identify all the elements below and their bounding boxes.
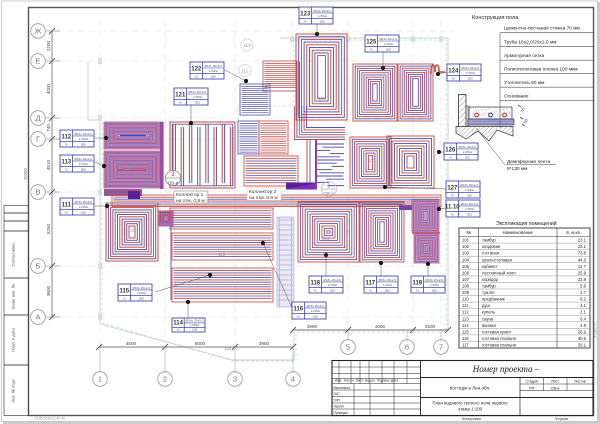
svg-text:Арматурная сетка: Арматурная сетка [504, 53, 545, 59]
svg-text:114: 114 [173, 320, 183, 326]
svg-text:L=50м: L=50м [209, 69, 218, 73]
svg-text:№ док.: № док. [365, 379, 375, 383]
svg-text:114: 114 [462, 323, 469, 328]
svg-text:L=50м: L=50м [383, 283, 392, 287]
svg-text:108: 108 [462, 284, 470, 289]
svg-text:Ж: Ж [35, 27, 42, 36]
svg-text:104: 104 [462, 257, 470, 262]
svg-text:200: 200 [385, 288, 390, 292]
svg-text:L=50м: L=50м [384, 42, 393, 46]
svg-text:117: 117 [365, 280, 375, 286]
svg-text:гостевая спальня: гостевая спальня [482, 336, 516, 341]
svg-text:Ø16x 20x2,0: Ø16x 20x2,0 [461, 202, 479, 206]
svg-text:4510: 4510 [46, 159, 51, 170]
svg-text:200: 200 [81, 142, 86, 146]
svg-text:Ø16x 20x2,0: Ø16x 20x2,0 [189, 90, 207, 94]
svg-text:2: 2 [163, 375, 167, 384]
svg-text:S, м.кв.: S, м.кв. [566, 230, 581, 235]
svg-text:117: 117 [125, 166, 133, 171]
svg-text:Г: Г [36, 135, 40, 144]
svg-text:103: 103 [462, 251, 470, 256]
svg-text:Формат: Формат [555, 417, 569, 421]
svg-text:купель: купель [482, 310, 496, 315]
svg-text:104: 104 [322, 236, 330, 241]
svg-text:200: 200 [211, 74, 216, 78]
svg-text:112: 112 [61, 134, 71, 140]
svg-text:4.1: 4.1 [580, 303, 586, 308]
svg-text:Дата: Дата [391, 379, 398, 383]
svg-text:тамбур: тамбур [482, 284, 496, 289]
svg-text:7: 7 [439, 343, 443, 352]
svg-text:200: 200 [467, 212, 472, 216]
svg-text:Д: Д [35, 114, 40, 123]
svg-text:L=50м: L=50м [430, 283, 439, 287]
svg-text:гостиная: гостиная [482, 251, 499, 256]
svg-text:кухня-столовая: кухня-столовая [482, 257, 512, 262]
svg-text:Экспликация помещений: Экспликация помещений [496, 220, 557, 227]
svg-text:200: 200 [467, 193, 472, 197]
svg-text:№: № [466, 230, 471, 235]
svg-text:Стадия: Стадия [526, 380, 538, 384]
svg-text:44.0: 44.0 [578, 257, 587, 262]
svg-text:123: 123 [300, 11, 311, 17]
svg-text:200: 200 [139, 296, 144, 300]
svg-text:29.1: 29.1 [578, 343, 587, 348]
svg-text:L=50м: L=50м [79, 137, 88, 141]
svg-text:8.4: 8.4 [580, 316, 586, 321]
svg-text:103: 103 [368, 158, 376, 163]
svg-text:8*130 мм: 8*130 мм [507, 166, 527, 172]
svg-text:3960: 3960 [307, 324, 318, 329]
svg-text:105: 105 [462, 264, 470, 269]
svg-text:Исполнила: Исполнила [334, 386, 351, 390]
svg-text:предбанник: предбанник [482, 297, 505, 302]
svg-text:15.05.2012 11:49:10: 15.05.2012 11:49:10 [34, 417, 65, 421]
svg-text:111: 111 [62, 202, 72, 208]
svg-text:ГАП: ГАП [334, 392, 341, 396]
svg-text:116: 116 [150, 136, 158, 141]
svg-text:101: 101 [128, 228, 136, 233]
svg-text:Ø16x 20x2,0: Ø16x 20x2,0 [133, 286, 151, 290]
svg-text:5000: 5000 [195, 341, 206, 346]
svg-text:Ø16x 20x2,0: Ø16x 20x2,0 [380, 37, 398, 41]
svg-text:4500: 4500 [126, 341, 137, 346]
svg-text:тамбур: тамбур [482, 238, 496, 243]
svg-text:115: 115 [462, 329, 469, 334]
svg-text:200: 200 [313, 314, 318, 318]
svg-text:Чертил: Чертил [334, 405, 345, 409]
svg-text:ОВ-в: ОВ-в [324, 191, 334, 196]
svg-text:Ø16x 20x2,0: Ø16x 20x2,0 [75, 132, 93, 136]
svg-text:коридор: коридор [482, 277, 499, 282]
svg-text:3960: 3960 [259, 341, 270, 346]
svg-text:Изм.: Изм. [335, 379, 342, 383]
svg-text:200: 200 [432, 288, 437, 292]
svg-text:106: 106 [318, 96, 326, 101]
svg-text:Согласовано: Согласовано [11, 242, 16, 267]
svg-text:Е: Е [35, 57, 40, 66]
svg-text:этажа 1:100: этажа 1:100 [458, 407, 483, 412]
svg-text:Формат А3: Формат А3 [594, 322, 598, 338]
svg-text:L=50м: L=50м [193, 95, 202, 99]
svg-text:107: 107 [462, 277, 470, 282]
svg-text:22.9: 22.9 [578, 277, 587, 282]
svg-text:Лист: Лист [551, 380, 559, 384]
svg-text:115: 115 [218, 252, 226, 257]
svg-text:200: 200 [195, 100, 200, 104]
svg-text:5.6: 5.6 [580, 284, 586, 289]
svg-text:Основание: Основание [504, 94, 529, 100]
svg-text:L=50м: L=50м [318, 14, 327, 18]
svg-text:L=50м: L=50м [137, 291, 146, 295]
svg-text:Б: Б [36, 262, 41, 271]
svg-text:Взам. инв. №: Взам. инв. № [11, 284, 16, 309]
svg-text:3: 3 [328, 184, 331, 190]
svg-text:11.10: 11.10 [445, 204, 460, 210]
svg-text:127: 127 [447, 185, 458, 191]
svg-text:6: 6 [405, 343, 409, 352]
svg-text:12.7: 12.7 [578, 264, 587, 269]
svg-text:122: 122 [191, 66, 202, 72]
svg-text:L=50м: L=50м [465, 207, 474, 211]
svg-text:гостевая кухня: гостевая кухня [482, 329, 511, 334]
svg-text:117: 117 [462, 343, 469, 348]
svg-text:L=50м: L=50м [311, 309, 320, 313]
svg-text:200: 200 [330, 288, 335, 292]
svg-text:Демпферная лента: Демпферная лента [507, 159, 551, 165]
svg-text:Коллектор 2: Коллектор 2 [249, 189, 277, 195]
svg-text:20200: 20200 [23, 168, 28, 180]
svg-text:ОВ-в: ОВ-в [168, 181, 179, 186]
svg-text:124: 124 [448, 68, 459, 74]
svg-text:L=50м: L=50м [465, 188, 474, 192]
svg-text:Ø16x 20x2,0: Ø16x 20x2,0 [461, 183, 479, 187]
svg-text:L=50м: L=50м [328, 283, 337, 287]
svg-text:L=50м: L=50м [463, 150, 472, 154]
svg-text:200: 200 [386, 47, 391, 51]
svg-text:126: 126 [445, 147, 456, 153]
svg-text:200: 200 [192, 327, 197, 331]
svg-text:121: 121 [175, 92, 186, 98]
svg-text:102: 102 [462, 244, 470, 249]
svg-text:План водяного теплого пола пер: План водяного теплого пола первого [432, 401, 508, 406]
svg-text:гостевая спальня: гостевая спальня [482, 343, 516, 348]
svg-text:Труба 16х2,0/20х2,0 мм: Труба 16х2,0/20х2,0 мм [504, 40, 556, 46]
svg-text:106: 106 [462, 270, 470, 275]
svg-text:200: 200 [465, 155, 470, 159]
svg-text:116: 116 [462, 336, 469, 341]
svg-text:Ø16x 20x2,0: Ø16x 20x2,0 [205, 64, 223, 68]
svg-text:В: В [35, 188, 40, 197]
svg-text:110: 110 [462, 297, 469, 302]
svg-text:111: 111 [462, 303, 469, 308]
svg-text:2200: 2200 [46, 40, 51, 51]
svg-text:2.1: 2.1 [580, 310, 586, 315]
svg-text:4.9: 4.9 [580, 323, 586, 328]
svg-text:Конструкция пола: Конструкция пола [472, 15, 519, 21]
svg-text:119: 119 [412, 280, 422, 286]
svg-text:Коллектор 1: Коллектор 1 [176, 192, 204, 198]
svg-text:Ø16x 20x2,0: Ø16x 20x2,0 [462, 66, 480, 70]
svg-text:109: 109 [462, 290, 470, 295]
svg-text:ванная: ванная [482, 323, 496, 328]
svg-text:2.7: 2.7 [580, 290, 586, 295]
svg-text:200: 200 [81, 167, 86, 171]
svg-text:сауна: сауна [482, 316, 494, 321]
svg-text:113: 113 [61, 159, 71, 165]
svg-text:112: 112 [241, 69, 249, 74]
svg-text:на отм. 0.8 м: на отм. 0.8 м [249, 195, 278, 201]
svg-text:L=50м: L=50м [79, 205, 88, 209]
svg-text:26.9: 26.9 [578, 329, 587, 334]
svg-text:Копировал: Копировал [462, 417, 481, 421]
svg-text:Ø16x 20x2,0: Ø16x 20x2,0 [459, 145, 477, 149]
svg-text:4000: 4000 [46, 83, 51, 94]
svg-text:Кол.уч.: Кол.уч. [344, 379, 355, 383]
svg-text:23.1: 23.1 [578, 238, 587, 243]
svg-text:L=50м: L=50м [466, 71, 475, 75]
svg-text:3600: 3600 [46, 285, 51, 296]
svg-text:ОВ-в: ОВ-в [551, 386, 560, 390]
svg-text:А: А [35, 313, 40, 322]
svg-text:2500: 2500 [425, 324, 436, 329]
svg-text:Номер проекта –: Номер проекта – [472, 364, 540, 374]
svg-text:кабинет: кабинет [482, 264, 497, 269]
svg-text:5: 5 [346, 343, 350, 352]
svg-text:лестничный холл: лестничный холл [482, 270, 516, 275]
svg-text:Цементно-песчаная стяжка 70 мм: Цементно-песчаная стяжка 70 мм [504, 26, 580, 32]
svg-text:73.8: 73.8 [578, 251, 587, 256]
svg-text:Ø16x 20x2,0: Ø16x 20x2,0 [426, 278, 444, 282]
svg-text:200: 200 [320, 19, 325, 23]
svg-text:L=50м: L=50м [190, 323, 199, 327]
svg-text:113: 113 [462, 316, 469, 321]
svg-text:туалет: туалет [482, 290, 495, 295]
svg-text:30.6: 30.6 [578, 336, 587, 341]
svg-text:740: 740 [46, 124, 51, 132]
svg-text:118: 118 [310, 280, 320, 286]
svg-text:125: 125 [366, 39, 377, 45]
svg-text:Наименование: Наименование [502, 230, 533, 235]
svg-text:Подп. и дата: Подп. и дата [11, 327, 16, 351]
svg-text:Коттедж в Лен.обл.: Коттедж в Лен.обл. [450, 386, 491, 391]
svg-text:108: 108 [414, 244, 422, 249]
svg-text:3: 3 [233, 375, 237, 384]
svg-text:4: 4 [291, 375, 295, 384]
svg-text:Ø16x 20x2,0: Ø16x 20x2,0 [314, 9, 332, 13]
svg-text:Ø16x 20x2,0: Ø16x 20x2,0 [75, 200, 93, 204]
svg-text:Лист: Лист [356, 379, 363, 383]
svg-text:Листов: Листов [574, 380, 586, 384]
svg-text:200: 200 [81, 210, 86, 214]
svg-text:116: 116 [293, 306, 303, 312]
svg-text:25.9: 25.9 [578, 270, 587, 275]
svg-text:L=50м: L=50м [79, 162, 88, 166]
svg-text:Утеплитель 50 мм: Утеплитель 50 мм [504, 80, 544, 86]
svg-text:кладовая: кладовая [482, 244, 500, 249]
svg-text:Ø16x 20x2,0: Ø16x 20x2,0 [307, 304, 325, 308]
svg-text:1: 1 [98, 375, 102, 384]
svg-text:Ø16x 20x2,0: Ø16x 20x2,0 [324, 278, 342, 282]
svg-text:Полиэтиленовая пленка 100 мкм: Полиэтиленовая пленка 100 мкм [504, 67, 578, 73]
svg-text:душ: душ [482, 303, 491, 308]
svg-text:Ø16x 20x2,0: Ø16x 20x2,0 [75, 157, 93, 161]
svg-text:ГИП: ГИП [334, 398, 341, 402]
svg-text:Инв. № подл.: Инв. № подл. [11, 378, 16, 403]
svg-text:23.1: 23.1 [578, 244, 587, 249]
svg-text:200: 200 [468, 76, 473, 80]
svg-text:4080: 4080 [375, 324, 386, 329]
svg-text:113: 113 [243, 43, 251, 48]
svg-text:5250: 5250 [46, 223, 51, 234]
svg-text:8.2: 8.2 [580, 297, 586, 302]
svg-text:115: 115 [119, 288, 129, 294]
svg-text:112: 112 [462, 310, 469, 315]
svg-text:Ø16x 20x2,0: Ø16x 20x2,0 [379, 278, 397, 282]
svg-text:РП: РП [529, 386, 535, 390]
svg-text:Проверил: Проверил [334, 411, 349, 415]
svg-text:101: 101 [462, 238, 470, 243]
svg-text:Подпись: Подпись [377, 379, 390, 383]
